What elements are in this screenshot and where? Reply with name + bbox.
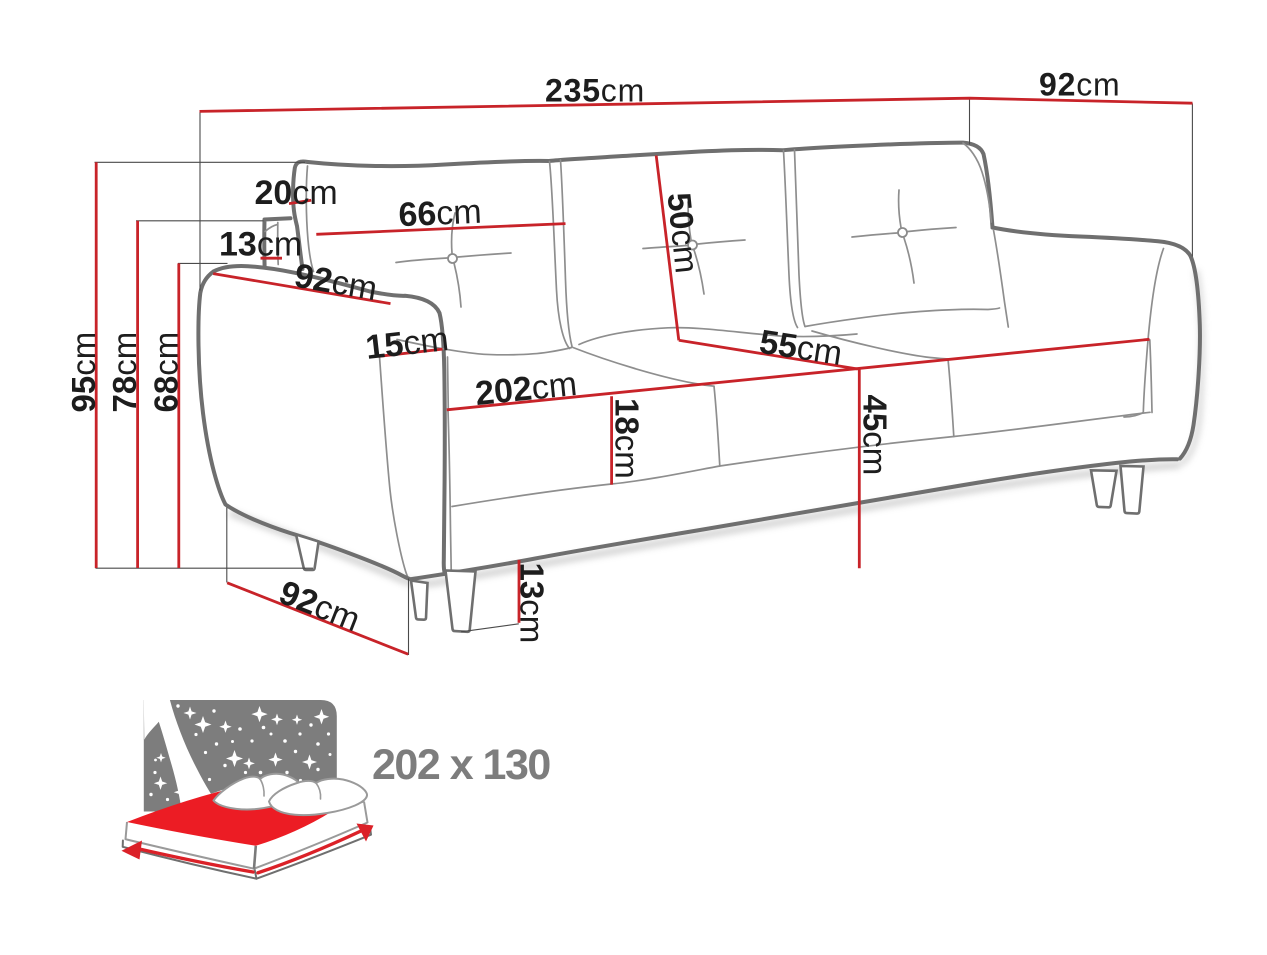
- svg-text:78cm: 78cm: [106, 332, 143, 413]
- svg-text:45cm: 45cm: [857, 395, 894, 476]
- svg-text:13cm: 13cm: [514, 563, 551, 644]
- svg-text:235cm: 235cm: [545, 73, 645, 109]
- svg-text:95cm: 95cm: [65, 332, 102, 413]
- svg-text:20cm: 20cm: [255, 174, 338, 212]
- svg-text:92cm: 92cm: [1039, 67, 1120, 103]
- svg-text:18cm: 18cm: [609, 398, 646, 479]
- svg-text:13cm: 13cm: [219, 226, 302, 264]
- svg-text:68cm: 68cm: [148, 332, 185, 413]
- svg-text:66cm: 66cm: [398, 193, 483, 235]
- svg-text:202 x 130: 202 x 130: [372, 741, 550, 789]
